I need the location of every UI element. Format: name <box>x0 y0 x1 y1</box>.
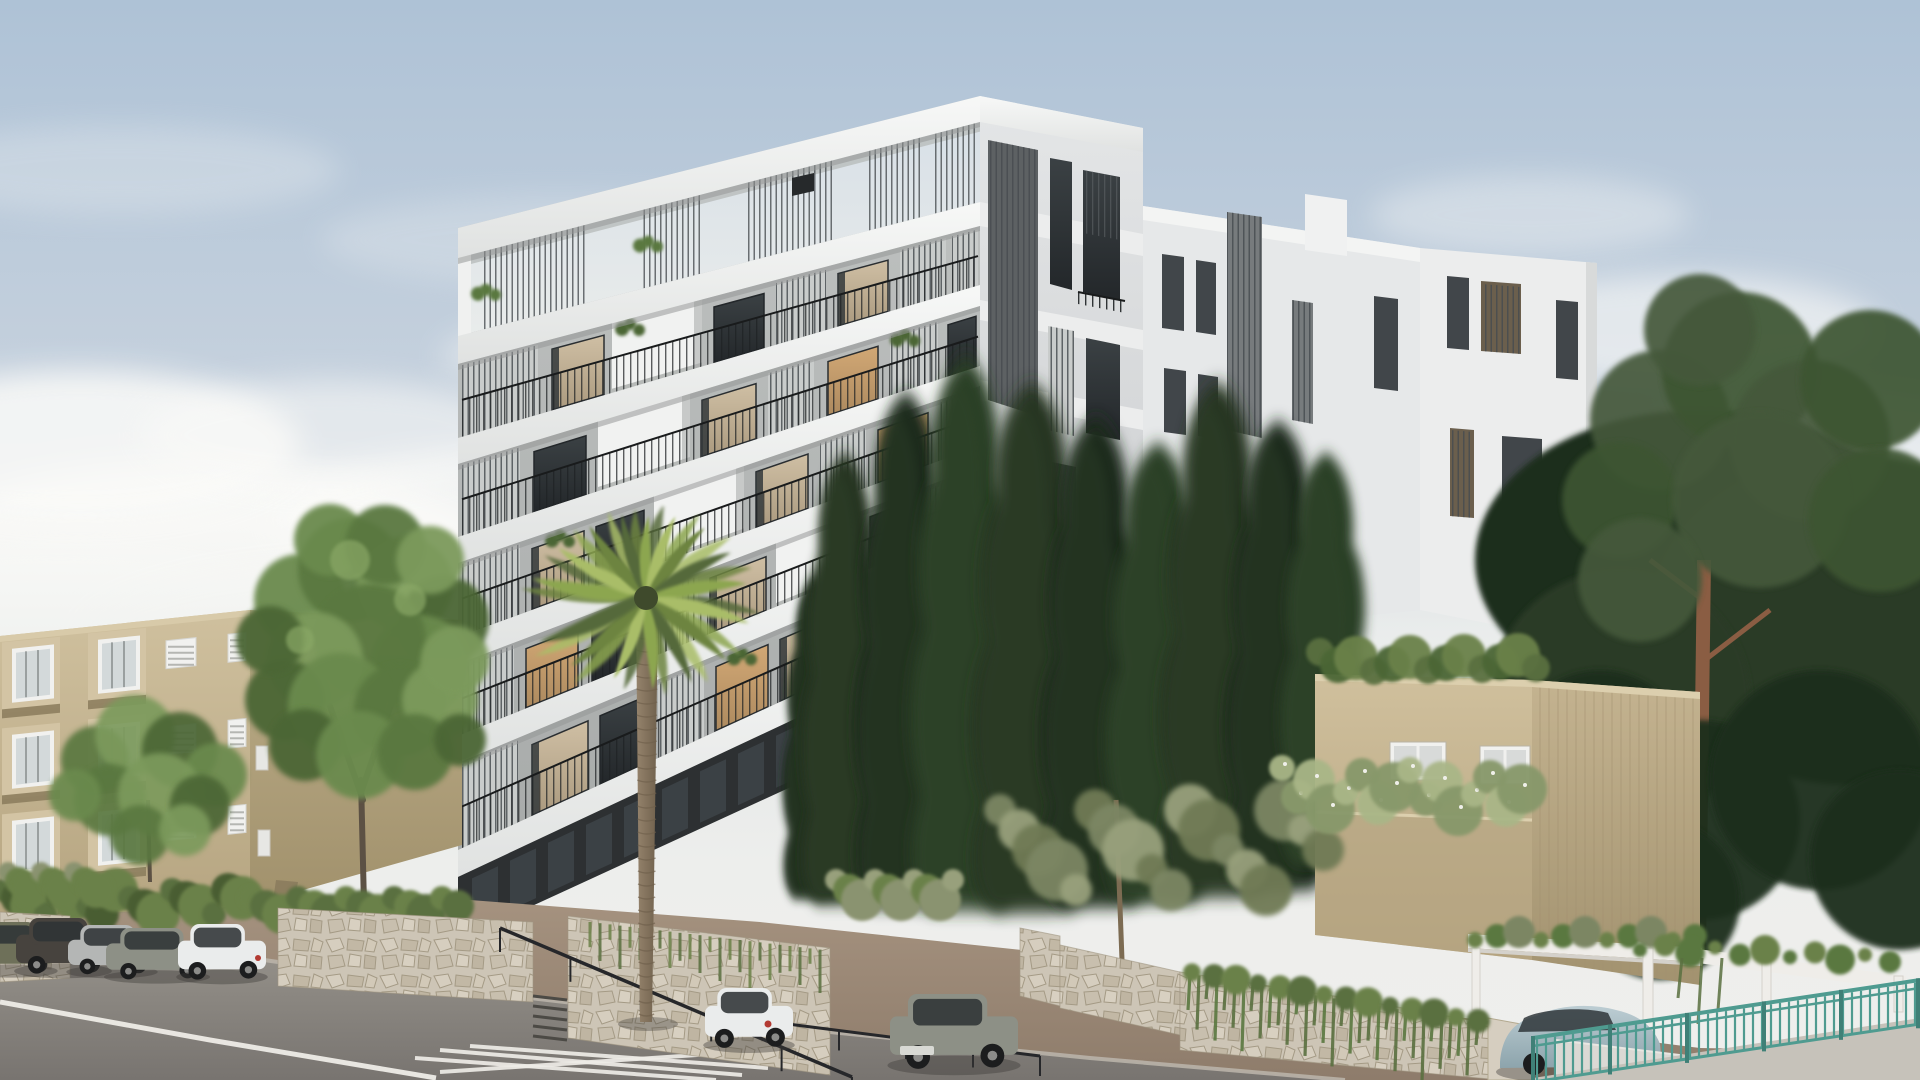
bay-window-glass <box>16 735 50 785</box>
stone-pillar <box>1020 928 1060 1006</box>
pergola-vine <box>1569 916 1601 948</box>
tree-canopy-highlight <box>330 540 370 580</box>
driveway-bush <box>942 869 964 891</box>
flowering-shrub <box>1497 764 1547 814</box>
flowering-shrub <box>1269 755 1295 781</box>
ivy-top-fringe <box>1249 975 1267 993</box>
flower-dot <box>1523 783 1527 787</box>
taillight <box>765 1021 772 1028</box>
pergola-vine <box>1633 943 1647 957</box>
ivy-top-fringe <box>1447 1008 1465 1026</box>
wall-ivy <box>1287 991 1289 1045</box>
pine-canopy <box>1644 274 1756 386</box>
car-hub <box>771 1033 779 1041</box>
stair-shaft-louvers <box>988 140 1038 416</box>
flower-dot <box>1491 771 1495 775</box>
rear-louver-window <box>1481 284 1521 354</box>
car-window <box>124 931 179 949</box>
balcony-plant <box>745 653 757 665</box>
side-window-louver <box>1083 170 1120 240</box>
flower-dot <box>1395 781 1399 785</box>
flower-dot <box>1443 776 1447 780</box>
pergola-vine <box>1654 934 1676 956</box>
pergola-vine <box>1503 916 1535 948</box>
flower-dot <box>1459 805 1463 809</box>
pergola-post <box>1472 948 1480 1010</box>
wall-ivy <box>1332 998 1334 1066</box>
cloud <box>1370 175 1690 255</box>
car-hub <box>194 967 201 974</box>
louver-shaft-slats <box>1292 300 1313 424</box>
terrace-plant <box>489 289 501 301</box>
side-small-window <box>256 746 268 770</box>
car-window <box>721 992 769 1013</box>
rear-window <box>1374 296 1398 391</box>
pergola-vine <box>1879 951 1901 973</box>
tree-canopy <box>434 714 486 766</box>
wall-ivy <box>1467 1021 1469 1075</box>
rear-louver-window <box>1450 430 1474 518</box>
flower-dot <box>1411 764 1415 768</box>
pergola-vine <box>1858 948 1872 962</box>
ivy-top-fringe <box>1466 1009 1490 1033</box>
bay-window-glass <box>16 649 50 699</box>
pergola-vine <box>1599 932 1615 948</box>
pergola-vine <box>1825 945 1855 975</box>
small-tree-canopy <box>159 804 211 856</box>
roof-pergola-pier <box>458 253 471 338</box>
side-small-window <box>258 830 270 856</box>
car-window <box>194 928 242 948</box>
ivy-top-fringe <box>1381 997 1399 1015</box>
car-hub <box>33 961 40 968</box>
balcony-plant <box>633 324 645 336</box>
flower-dot <box>1283 762 1287 766</box>
car-window <box>33 922 84 942</box>
ivy-top-fringe <box>1419 998 1449 1028</box>
rear-window <box>1556 300 1578 380</box>
rear-window <box>1447 276 1469 350</box>
parapet-bush <box>1522 654 1550 682</box>
pergola-vine <box>1708 941 1722 955</box>
ivy-top-fringe <box>1287 976 1317 1006</box>
pergola-vine <box>1729 944 1751 966</box>
balcony-plant <box>908 335 920 347</box>
palm-crown-core <box>634 586 658 610</box>
bay-window-glass <box>102 640 136 690</box>
ivy-top-fringe <box>1315 986 1333 1004</box>
tree-canopy-highlight <box>394 584 426 616</box>
planter-bush <box>78 872 114 908</box>
flower-dot <box>1315 774 1319 778</box>
wall-ivy <box>1395 1009 1397 1071</box>
olive-shrub <box>1240 864 1292 916</box>
wall-ivy <box>1197 976 1199 1030</box>
olive-shrub <box>1302 829 1344 871</box>
car-hub <box>84 963 90 969</box>
pergola-vine <box>1750 935 1780 965</box>
car-hub <box>720 1034 728 1042</box>
rear-roof-cap <box>1305 194 1347 256</box>
wall-ivy <box>1260 986 1262 1038</box>
ivy-top-fringe <box>1353 987 1383 1017</box>
ivy-top-fringe <box>1221 965 1251 995</box>
flower-dot <box>1331 803 1335 807</box>
taillight <box>255 955 261 961</box>
architectural-rendering <box>0 0 1920 1080</box>
rear-window <box>1164 368 1186 435</box>
wall-ivy <box>1323 997 1325 1043</box>
rear-window <box>1162 254 1184 331</box>
license-plate <box>900 1046 934 1055</box>
flowering-shrub <box>1397 757 1423 783</box>
car-hub <box>988 1051 998 1061</box>
ivy-top-fringe <box>1183 963 1201 981</box>
wall-ivy <box>1377 1006 1379 1060</box>
rendering-canvas <box>0 0 1920 1080</box>
tree-canopy <box>396 526 464 594</box>
balcony-plant <box>563 536 575 548</box>
car-window <box>913 999 982 1026</box>
flower-dot <box>1363 769 1367 773</box>
pergola-vine <box>1783 950 1797 964</box>
pine-canopy <box>1578 518 1702 642</box>
terrace-plant <box>651 241 663 253</box>
pergola-vine <box>1533 932 1549 948</box>
wall-ivy <box>1314 995 1316 1025</box>
rear-window <box>1196 260 1216 335</box>
pergola-vine <box>1467 932 1483 948</box>
olive-shrub <box>1060 874 1092 906</box>
side-window <box>1050 158 1072 290</box>
small-tree-canopy <box>49 769 101 821</box>
car-hub <box>245 966 252 973</box>
tree-canopy <box>421 626 489 694</box>
tree-canopy-highlight <box>286 626 314 654</box>
pergola-vine <box>1804 941 1826 963</box>
car-hub <box>125 968 132 975</box>
olive-shrub <box>1150 869 1192 911</box>
